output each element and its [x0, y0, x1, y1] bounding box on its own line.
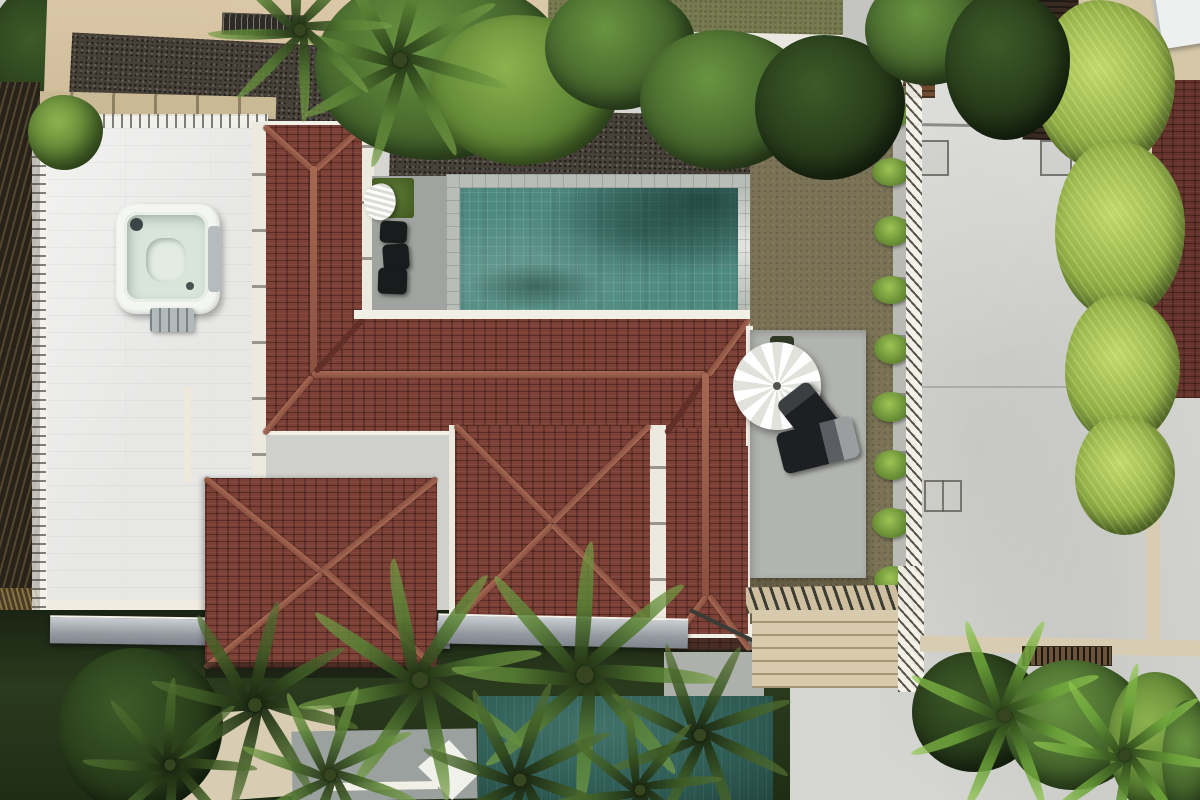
- pool-parapet: [354, 310, 754, 319]
- terrace-railing-left: [32, 116, 46, 626]
- hot-tub-jet: [130, 218, 143, 231]
- hedge-tuft: [872, 508, 910, 538]
- palm-tree: [1075, 415, 1175, 535]
- hot-tub-side-panel: [208, 226, 221, 292]
- hedge-tuft: [874, 334, 910, 364]
- parasol-pole: [773, 382, 781, 390]
- pool-shadow: [468, 262, 603, 310]
- hedge-tuft: [872, 158, 910, 186]
- roof-ridge: [310, 166, 317, 374]
- stacked-pool-chair: [378, 268, 408, 295]
- hedge-tuft: [874, 216, 910, 246]
- utility-marking: [924, 480, 962, 512]
- stacked-pool-chair: [382, 243, 410, 271]
- garden-bush: [58, 648, 223, 800]
- utility-cover: [919, 140, 949, 176]
- pavement-joint: [920, 386, 1070, 388]
- stacked-pool-chair: [379, 220, 407, 243]
- roof-ridge: [702, 373, 709, 599]
- garden-fence: [898, 566, 924, 692]
- roof-ridge: [312, 371, 706, 378]
- hot-tub-seat: [146, 238, 186, 282]
- palm-tree: [1055, 140, 1185, 320]
- hedge-tuft: [872, 276, 910, 304]
- hot-tub-jet: [186, 282, 194, 290]
- villa-aerial-photo: Top-down aerial drone photograph of a tr…: [0, 0, 1200, 800]
- terrace-inner-parapet: [184, 386, 191, 482]
- hedge-tuft: [874, 450, 910, 480]
- garden-stairs: [752, 610, 912, 688]
- hot-tub-steps: [150, 308, 194, 332]
- hedge-tuft: [872, 392, 910, 422]
